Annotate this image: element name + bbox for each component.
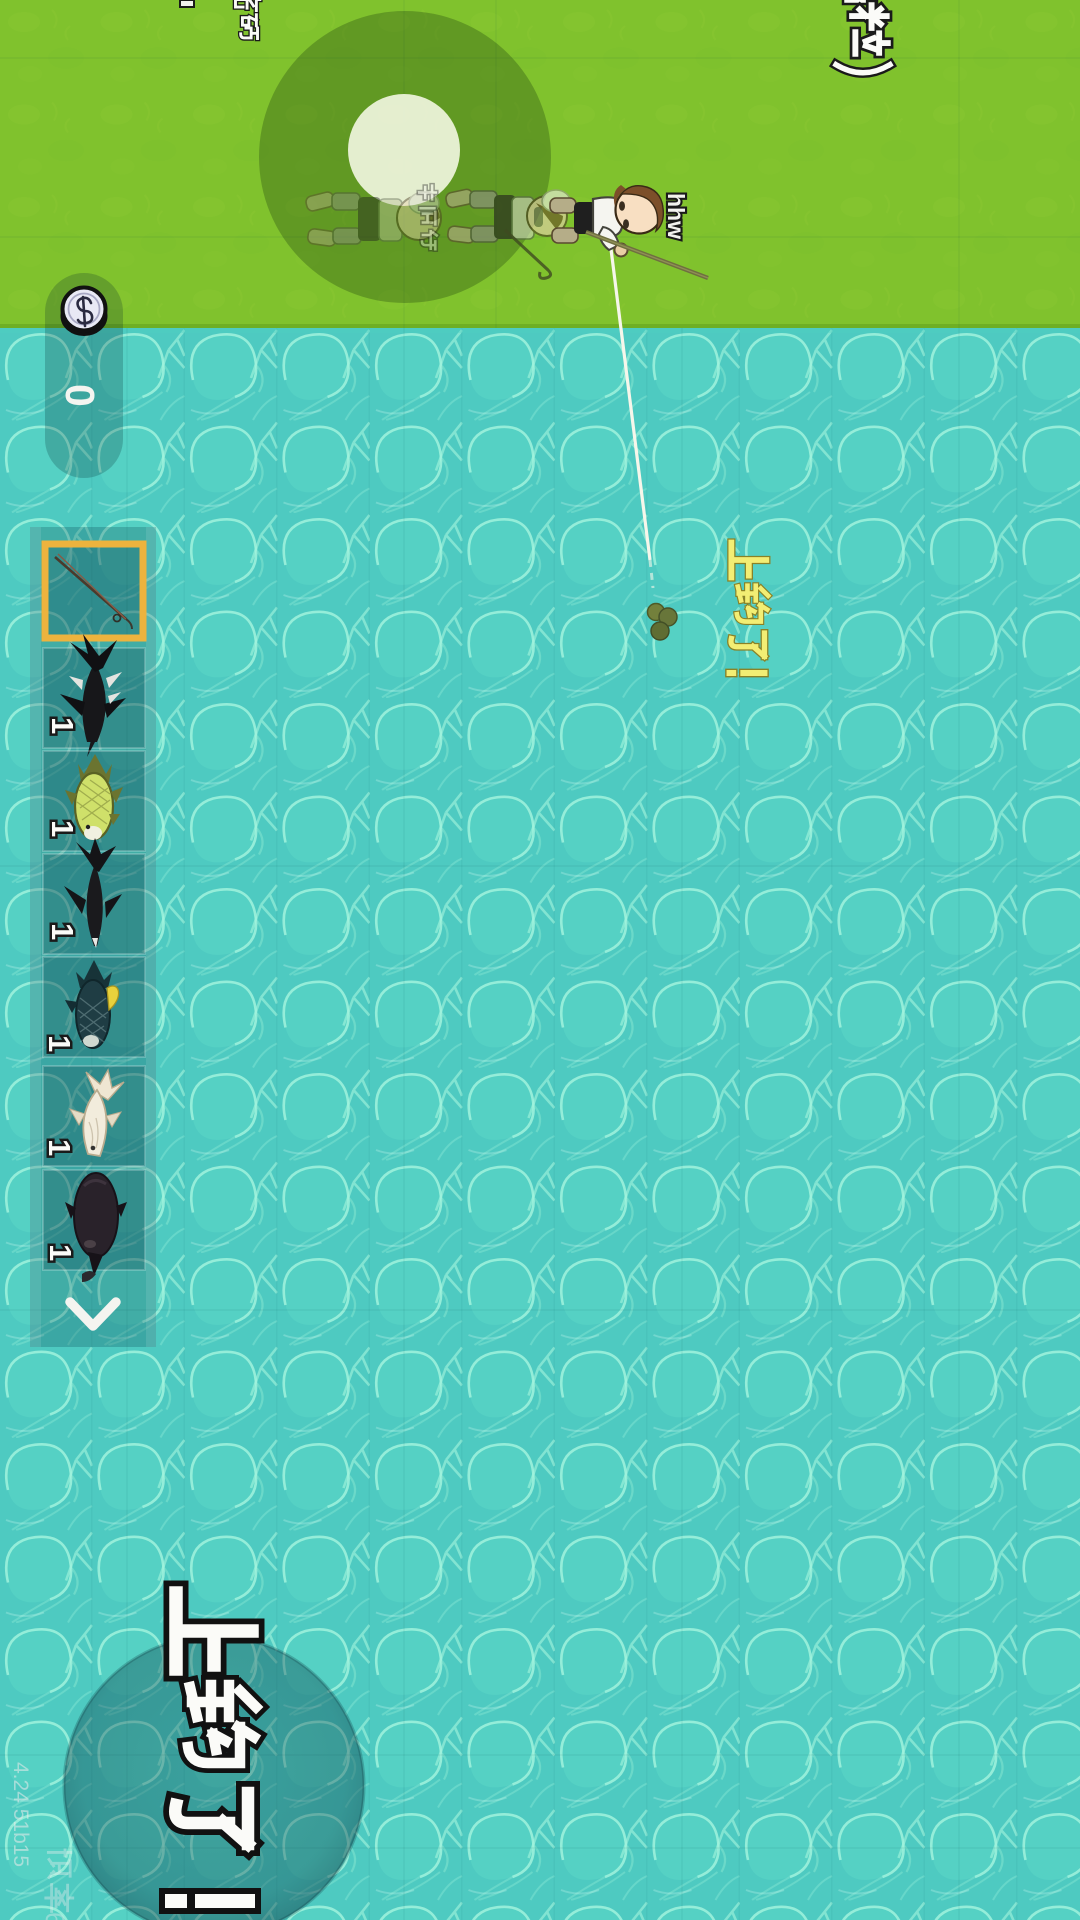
svg-text:0: 0 [57, 384, 103, 407]
svg-text:hhw: hhw [663, 193, 689, 239]
svg-text:1: 1 [45, 820, 80, 837]
svg-text:6: 6 [40, 1912, 70, 1920]
svg-text:1: 1 [45, 717, 80, 734]
svg-text:1: 1 [45, 923, 80, 940]
svg-text:4.24 51b15: 4.24 51b15 [9, 1762, 32, 1867]
svg-text:1: 1 [42, 1035, 77, 1052]
svg-text:1: 1 [43, 1244, 78, 1261]
svg-text:1: 1 [42, 1139, 77, 1156]
